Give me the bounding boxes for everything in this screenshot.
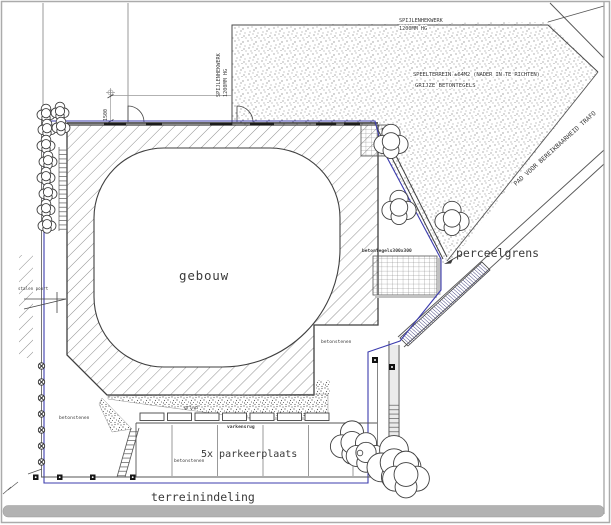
site-plan-page: SPIJLENHEKWERK 1200MM HG SPEELTERREIN ±6… (0, 0, 611, 525)
paving-label-a: betonstenen (321, 339, 352, 345)
drawing-title: terreinindeling (151, 490, 255, 504)
parcel-boundary-label: perceelgrens (456, 246, 539, 260)
parking-label: 5x parkeerplaats (201, 449, 297, 460)
tile-grid-betontegels (373, 256, 441, 298)
fence-left-label-1: SPIJLENHEKWERK (216, 52, 222, 97)
dimension-label: 1500 (103, 109, 109, 121)
site-plan-canvas: SPIJLENHEKWERK 1200MM HG SPEELTERREIN ±6… (0, 0, 611, 525)
curb-elements (140, 413, 329, 421)
curb-label: varkensrug (227, 424, 255, 430)
tiles-label: betontegels300x300 (362, 248, 412, 254)
gate-label: stalen poort (18, 286, 49, 291)
building-label: gebouw (179, 268, 229, 283)
window-bottom-bar (3, 506, 604, 518)
fence-top-label-2: 1200MM HG (399, 26, 427, 32)
left-hatch-strip (19, 255, 33, 358)
fence-left-label-2: 1200MM HG (223, 69, 229, 97)
left-fence-ladder (59, 147, 67, 231)
playground-label-2: GRIJZE BETONTEGELS (415, 83, 476, 89)
playground-label-1: SPEELTERREIN ±64M2 (NADER IN TE RICHTEN) (413, 72, 540, 78)
fence-top-label-1: SPIJLENHEKWERK (399, 18, 444, 24)
gravel-label: grind (184, 405, 198, 411)
paving-label-b: betonstenen (59, 415, 90, 421)
